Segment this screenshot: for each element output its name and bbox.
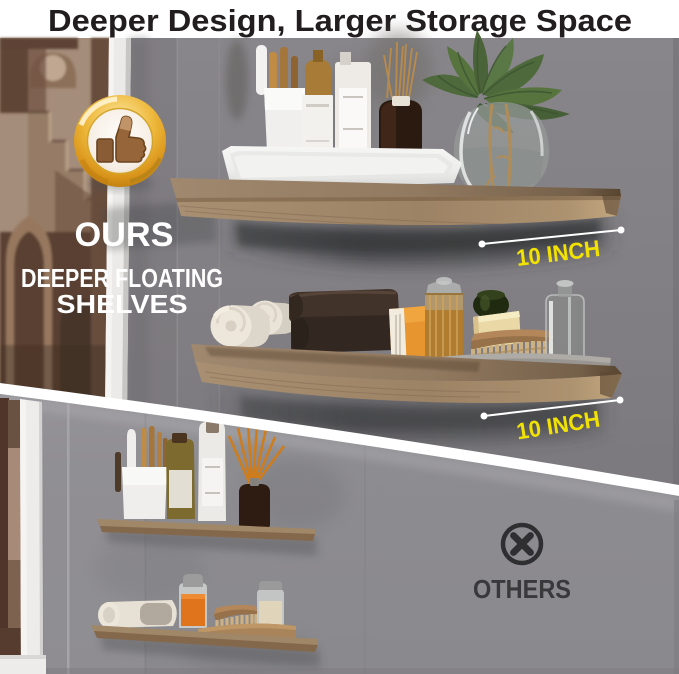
svg-text:SHELVES: SHELVES — [57, 289, 188, 319]
svg-text:Deeper Design, Larger Storage: Deeper Design, Larger Storage Space — [48, 3, 632, 38]
svg-text:OTHERS: OTHERS — [473, 574, 571, 604]
svg-text:OURS: OURS — [75, 216, 174, 254]
